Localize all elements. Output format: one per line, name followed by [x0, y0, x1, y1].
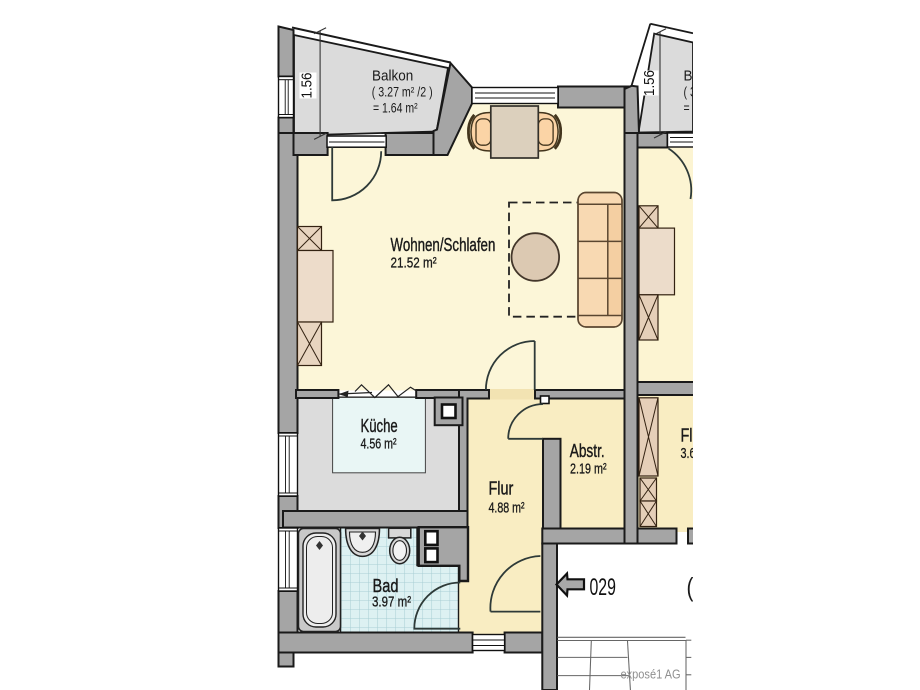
svg-text:Wohnen/Schlafen: Wohnen/Schlafen — [391, 235, 496, 256]
svg-text:2.19 m²: 2.19 m² — [570, 460, 607, 477]
svg-text:4.56 m²: 4.56 m² — [361, 435, 398, 452]
svg-text:4.88 m²: 4.88 m² — [489, 499, 526, 516]
svg-text:21.52 m²: 21.52 m² — [391, 254, 438, 271]
svg-text:1.56: 1.56 — [640, 70, 657, 96]
svg-text:= 1.64 m²: = 1.64 m² — [373, 100, 418, 116]
svg-text:Abstr.: Abstr. — [570, 441, 605, 461]
svg-text:Küche: Küche — [361, 416, 398, 437]
svg-text:exposé1 AG: exposé1 AG — [621, 667, 681, 682]
svg-text:1.56: 1.56 — [298, 72, 315, 98]
svg-text:Flur: Flur — [489, 478, 514, 499]
svg-text:( 3.27 m² /2 ): ( 3.27 m² /2 ) — [372, 84, 433, 100]
svg-text:Balkon: Balkon — [372, 68, 413, 85]
svg-text:3.97 m²: 3.97 m² — [372, 593, 412, 610]
svg-text:029: 029 — [590, 575, 616, 601]
svg-text:(: ( — [687, 573, 694, 602]
